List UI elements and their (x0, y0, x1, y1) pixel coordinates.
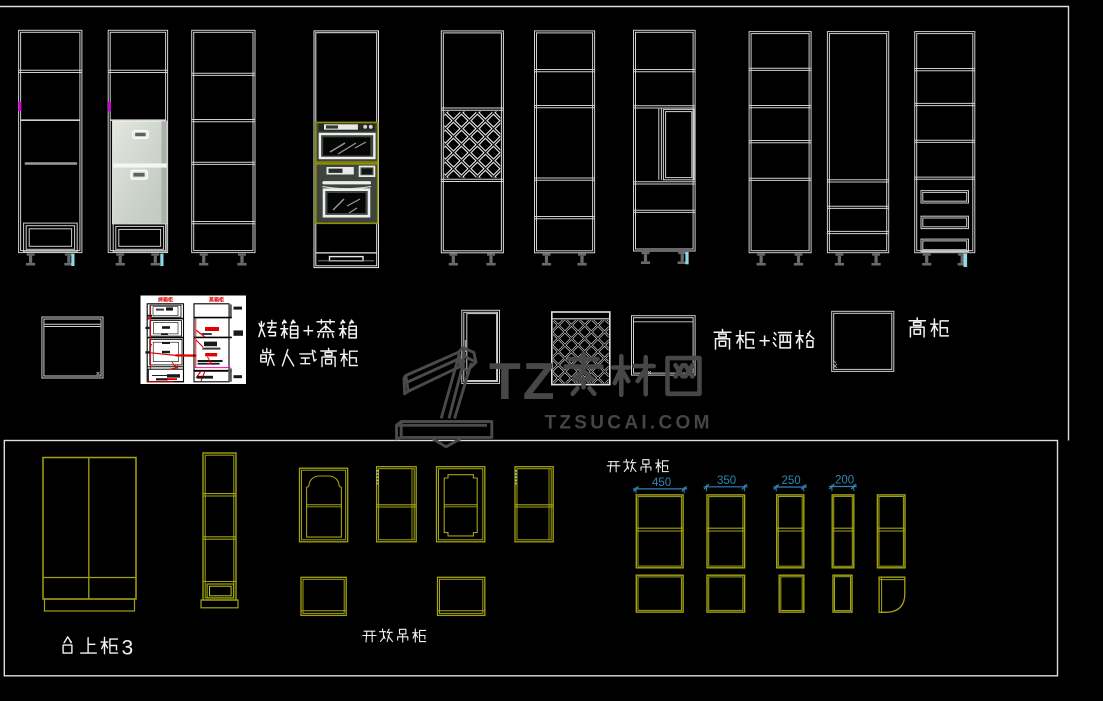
svg-text:蒸箱柜: 蒸箱柜 (209, 297, 224, 304)
svg-text:TZ: TZ (489, 353, 557, 411)
svg-text:+: + (303, 321, 315, 343)
svg-text:+: + (759, 330, 771, 353)
svg-text:350: 350 (717, 475, 736, 487)
svg-text:烤箱柜: 烤箱柜 (158, 297, 173, 304)
svg-text:TZSUCAI.COM: TZSUCAI.COM (545, 413, 713, 434)
svg-text:250: 250 (782, 475, 801, 487)
svg-text:450: 450 (652, 477, 671, 489)
svg-text:3: 3 (122, 637, 134, 660)
svg-text:200: 200 (835, 475, 854, 487)
